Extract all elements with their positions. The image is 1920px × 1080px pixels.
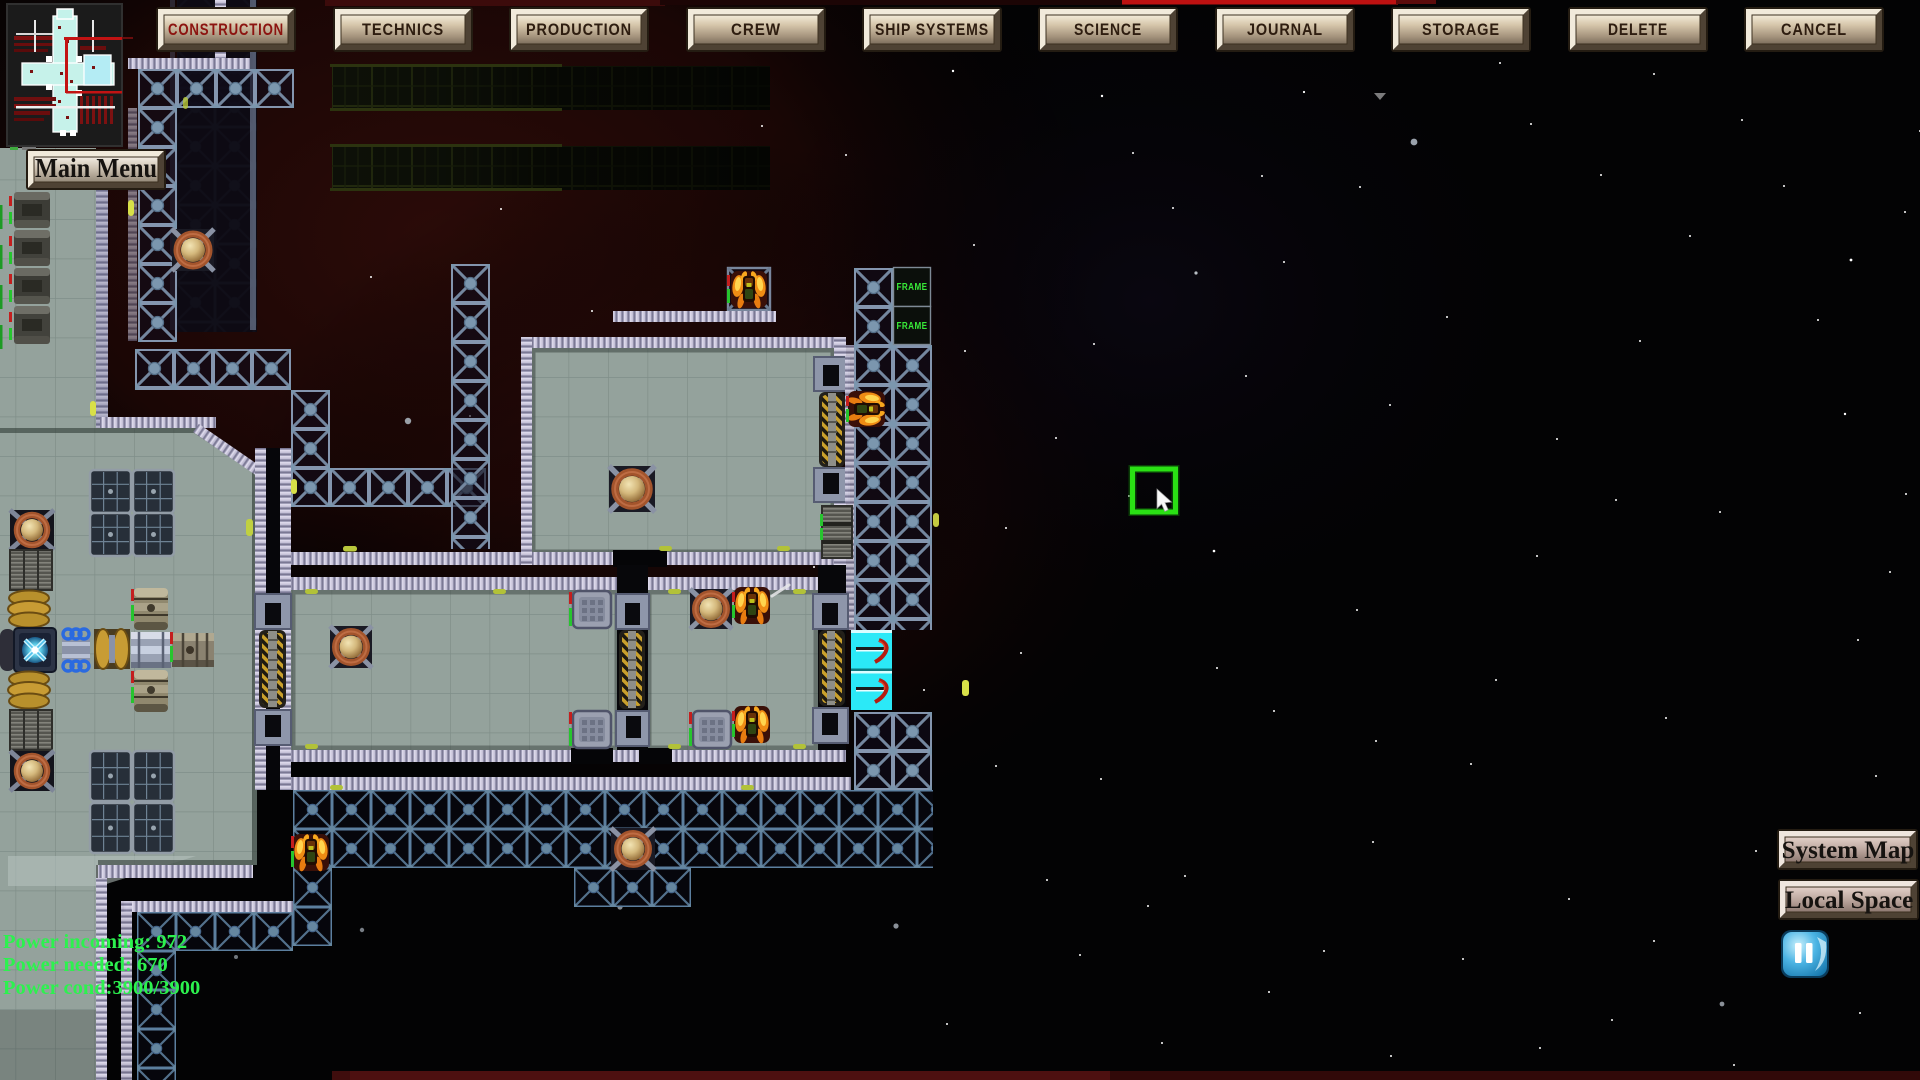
svg-text:CONSTRUCTION: CONSTRUCTION <box>168 21 284 39</box>
svg-text:STORAGE: STORAGE <box>1422 21 1500 39</box>
svg-text:Power cond:3900/3900: Power cond:3900/3900 <box>3 977 200 999</box>
svg-text:Main Menu: Main Menu <box>35 153 157 183</box>
svg-text:JOURNAL: JOURNAL <box>1247 21 1323 39</box>
svg-text:Power needed: 670: Power needed: 670 <box>3 954 168 976</box>
svg-text:TECHNICS: TECHNICS <box>362 21 444 39</box>
svg-text:FRAME: FRAME <box>897 321 928 332</box>
svg-text:System Map: System Map <box>1782 837 1915 864</box>
svg-text:DELETE: DELETE <box>1608 21 1668 39</box>
svg-text:FRAME: FRAME <box>897 282 928 293</box>
svg-text:Power incoming: 972: Power incoming: 972 <box>3 931 187 953</box>
svg-text:Local Space: Local Space <box>1785 887 1913 914</box>
svg-text:PRODUCTION: PRODUCTION <box>526 21 632 39</box>
svg-text:CANCEL: CANCEL <box>1781 21 1847 39</box>
svg-text:SCIENCE: SCIENCE <box>1074 21 1142 39</box>
svg-text:SHIP SYSTEMS: SHIP SYSTEMS <box>875 21 989 39</box>
svg-text:CREW: CREW <box>731 21 781 39</box>
